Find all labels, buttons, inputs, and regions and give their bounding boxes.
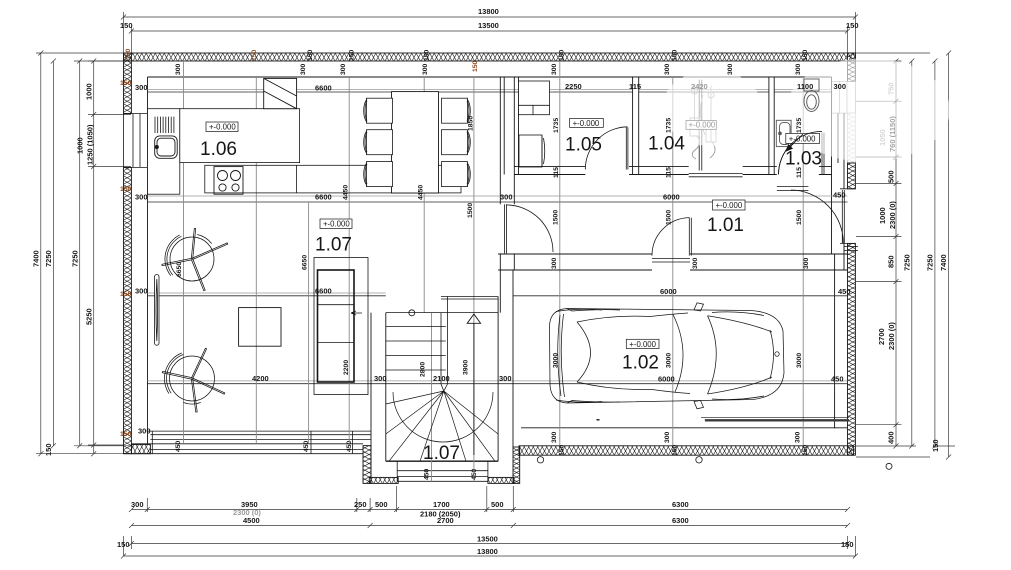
svg-text:150: 150	[559, 49, 566, 61]
svg-text:6000: 6000	[658, 375, 675, 384]
svg-text:1700: 1700	[433, 500, 450, 509]
svg-text:150: 150	[472, 60, 479, 72]
svg-text:300: 300	[727, 63, 734, 75]
svg-text:115: 115	[796, 167, 803, 178]
svg-text:450: 450	[831, 375, 844, 384]
svg-text:150: 150	[802, 49, 809, 61]
svg-text:13800: 13800	[478, 7, 499, 16]
svg-text:150: 150	[120, 186, 132, 193]
svg-text:400: 400	[887, 431, 896, 444]
svg-text:1735: 1735	[553, 118, 560, 133]
svg-text:115: 115	[666, 167, 673, 178]
svg-text:300: 300	[131, 500, 144, 509]
svg-text:6300: 6300	[672, 500, 689, 509]
svg-text:1.04: 1.04	[648, 134, 685, 155]
svg-text:450: 450	[838, 287, 851, 296]
svg-text:3000: 3000	[553, 353, 560, 368]
svg-text:150: 150	[307, 49, 314, 61]
svg-text:7250: 7250	[903, 254, 912, 271]
svg-text:300: 300	[500, 193, 513, 202]
svg-text:450: 450	[833, 191, 846, 200]
svg-text:1.06: 1.06	[200, 139, 237, 160]
svg-text:1500: 1500	[666, 210, 673, 225]
svg-text:150: 150	[802, 444, 809, 456]
svg-text:1850: 1850	[468, 116, 475, 131]
svg-text:150: 150	[44, 443, 53, 456]
svg-text:6650: 6650	[302, 255, 309, 270]
svg-text:1500: 1500	[467, 203, 474, 218]
svg-text:150: 150	[120, 21, 133, 30]
svg-text:6600: 6600	[315, 84, 332, 93]
svg-text:300: 300	[135, 83, 148, 92]
svg-text:150: 150	[120, 80, 132, 87]
svg-text:4200: 4200	[252, 374, 269, 383]
svg-text:6600: 6600	[315, 287, 332, 296]
svg-text:300: 300	[834, 82, 847, 91]
svg-text:+-0.000: +-0.000	[573, 119, 600, 128]
svg-text:300: 300	[551, 257, 558, 269]
svg-text:+-0.000: +-0.000	[689, 121, 716, 130]
svg-text:6000: 6000	[663, 193, 680, 202]
svg-text:6300: 6300	[672, 516, 689, 525]
svg-text:150: 150	[672, 49, 679, 61]
svg-text:115: 115	[553, 167, 560, 178]
svg-text:2700: 2700	[437, 516, 454, 525]
svg-text:13500: 13500	[478, 21, 499, 30]
svg-text:300: 300	[664, 63, 671, 75]
svg-text:2200: 2200	[343, 360, 350, 375]
svg-text:7400: 7400	[939, 254, 948, 271]
svg-text:850: 850	[887, 255, 896, 268]
svg-text:2420: 2420	[691, 82, 708, 91]
svg-text:1500: 1500	[553, 210, 560, 225]
svg-text:3000: 3000	[666, 353, 673, 368]
svg-text:150: 150	[120, 291, 132, 298]
svg-text:6000: 6000	[660, 287, 677, 296]
svg-text:450: 450	[175, 440, 182, 452]
svg-text:2250: 2250	[565, 82, 582, 91]
svg-text:6650: 6650	[176, 262, 183, 277]
svg-text:300: 300	[795, 431, 802, 443]
svg-text:2800: 2800	[420, 362, 427, 377]
svg-text:300: 300	[692, 257, 699, 269]
svg-text:4500: 4500	[243, 516, 260, 525]
svg-text:1100: 1100	[797, 82, 813, 91]
svg-text:1.07: 1.07	[315, 235, 352, 256]
svg-text:1735: 1735	[796, 118, 803, 133]
svg-text:1735: 1735	[666, 118, 673, 133]
svg-text:2300 (0): 2300 (0)	[888, 201, 897, 229]
svg-text:150: 150	[672, 444, 679, 456]
svg-text:300: 300	[795, 63, 802, 75]
svg-text:300: 300	[135, 287, 148, 296]
svg-text:300: 300	[664, 431, 671, 443]
svg-text:300: 300	[803, 257, 810, 269]
svg-text:300: 300	[374, 374, 387, 383]
svg-text:500: 500	[887, 170, 896, 183]
svg-text:150: 150	[424, 49, 431, 61]
svg-text:2300 (0): 2300 (0)	[887, 322, 896, 350]
svg-text:+-0.000: +-0.000	[209, 123, 236, 132]
svg-text:150: 150	[349, 49, 356, 61]
svg-text:450: 450	[471, 468, 478, 480]
svg-text:7250: 7250	[926, 254, 935, 271]
svg-text:250: 250	[354, 500, 367, 509]
svg-text:115: 115	[629, 82, 641, 91]
svg-text:150: 150	[125, 48, 132, 60]
svg-text:5250: 5250	[85, 308, 94, 325]
svg-text:1.02: 1.02	[622, 353, 659, 374]
svg-text:500: 500	[375, 500, 388, 509]
svg-text:1000: 1000	[76, 137, 85, 154]
svg-text:13800: 13800	[477, 547, 498, 556]
svg-text:500: 500	[491, 500, 504, 509]
svg-text:150: 150	[841, 540, 854, 549]
svg-text:1000: 1000	[878, 207, 887, 224]
svg-text:4450: 4450	[343, 185, 350, 200]
svg-text:13500: 13500	[477, 535, 498, 544]
svg-text:150: 150	[846, 21, 859, 30]
svg-text:+-0.000: +-0.000	[323, 220, 350, 229]
svg-text:3900: 3900	[463, 360, 470, 375]
svg-text:1.01: 1.01	[707, 215, 744, 236]
svg-text:150: 150	[559, 444, 566, 456]
svg-text:7400: 7400	[32, 250, 41, 267]
svg-text:1500: 1500	[796, 210, 803, 225]
svg-text:450: 450	[424, 468, 431, 480]
svg-text:300: 300	[300, 63, 307, 75]
svg-text:+-0.000: +-0.000	[629, 340, 656, 349]
svg-text:300: 300	[551, 431, 558, 443]
svg-text:2700: 2700	[877, 328, 886, 345]
svg-text:150: 150	[120, 431, 132, 438]
svg-text:300: 300	[138, 427, 151, 436]
svg-text:4450: 4450	[418, 185, 425, 200]
svg-text:3000: 3000	[796, 353, 803, 368]
svg-text:7250: 7250	[44, 250, 53, 267]
svg-text:1.05: 1.05	[565, 135, 602, 156]
svg-text:+-0.000: +-0.000	[716, 201, 743, 210]
svg-text:300: 300	[340, 63, 347, 75]
svg-text:1000: 1000	[85, 83, 94, 100]
svg-text:6600: 6600	[315, 193, 332, 202]
svg-text:2100: 2100	[433, 374, 450, 383]
svg-text:7250: 7250	[70, 250, 79, 267]
svg-text:300: 300	[499, 374, 512, 383]
svg-text:1.07: 1.07	[423, 443, 460, 464]
svg-text:300: 300	[135, 193, 148, 202]
svg-text:150: 150	[251, 49, 258, 61]
svg-text:1250 (1050): 1250 (1050)	[86, 124, 95, 165]
svg-text:150: 150	[117, 540, 130, 549]
svg-text:300: 300	[422, 63, 429, 75]
svg-text:300: 300	[551, 63, 558, 75]
svg-text:150: 150	[931, 439, 940, 452]
svg-text:300: 300	[175, 63, 182, 75]
svg-text:1.03: 1.03	[785, 149, 822, 170]
